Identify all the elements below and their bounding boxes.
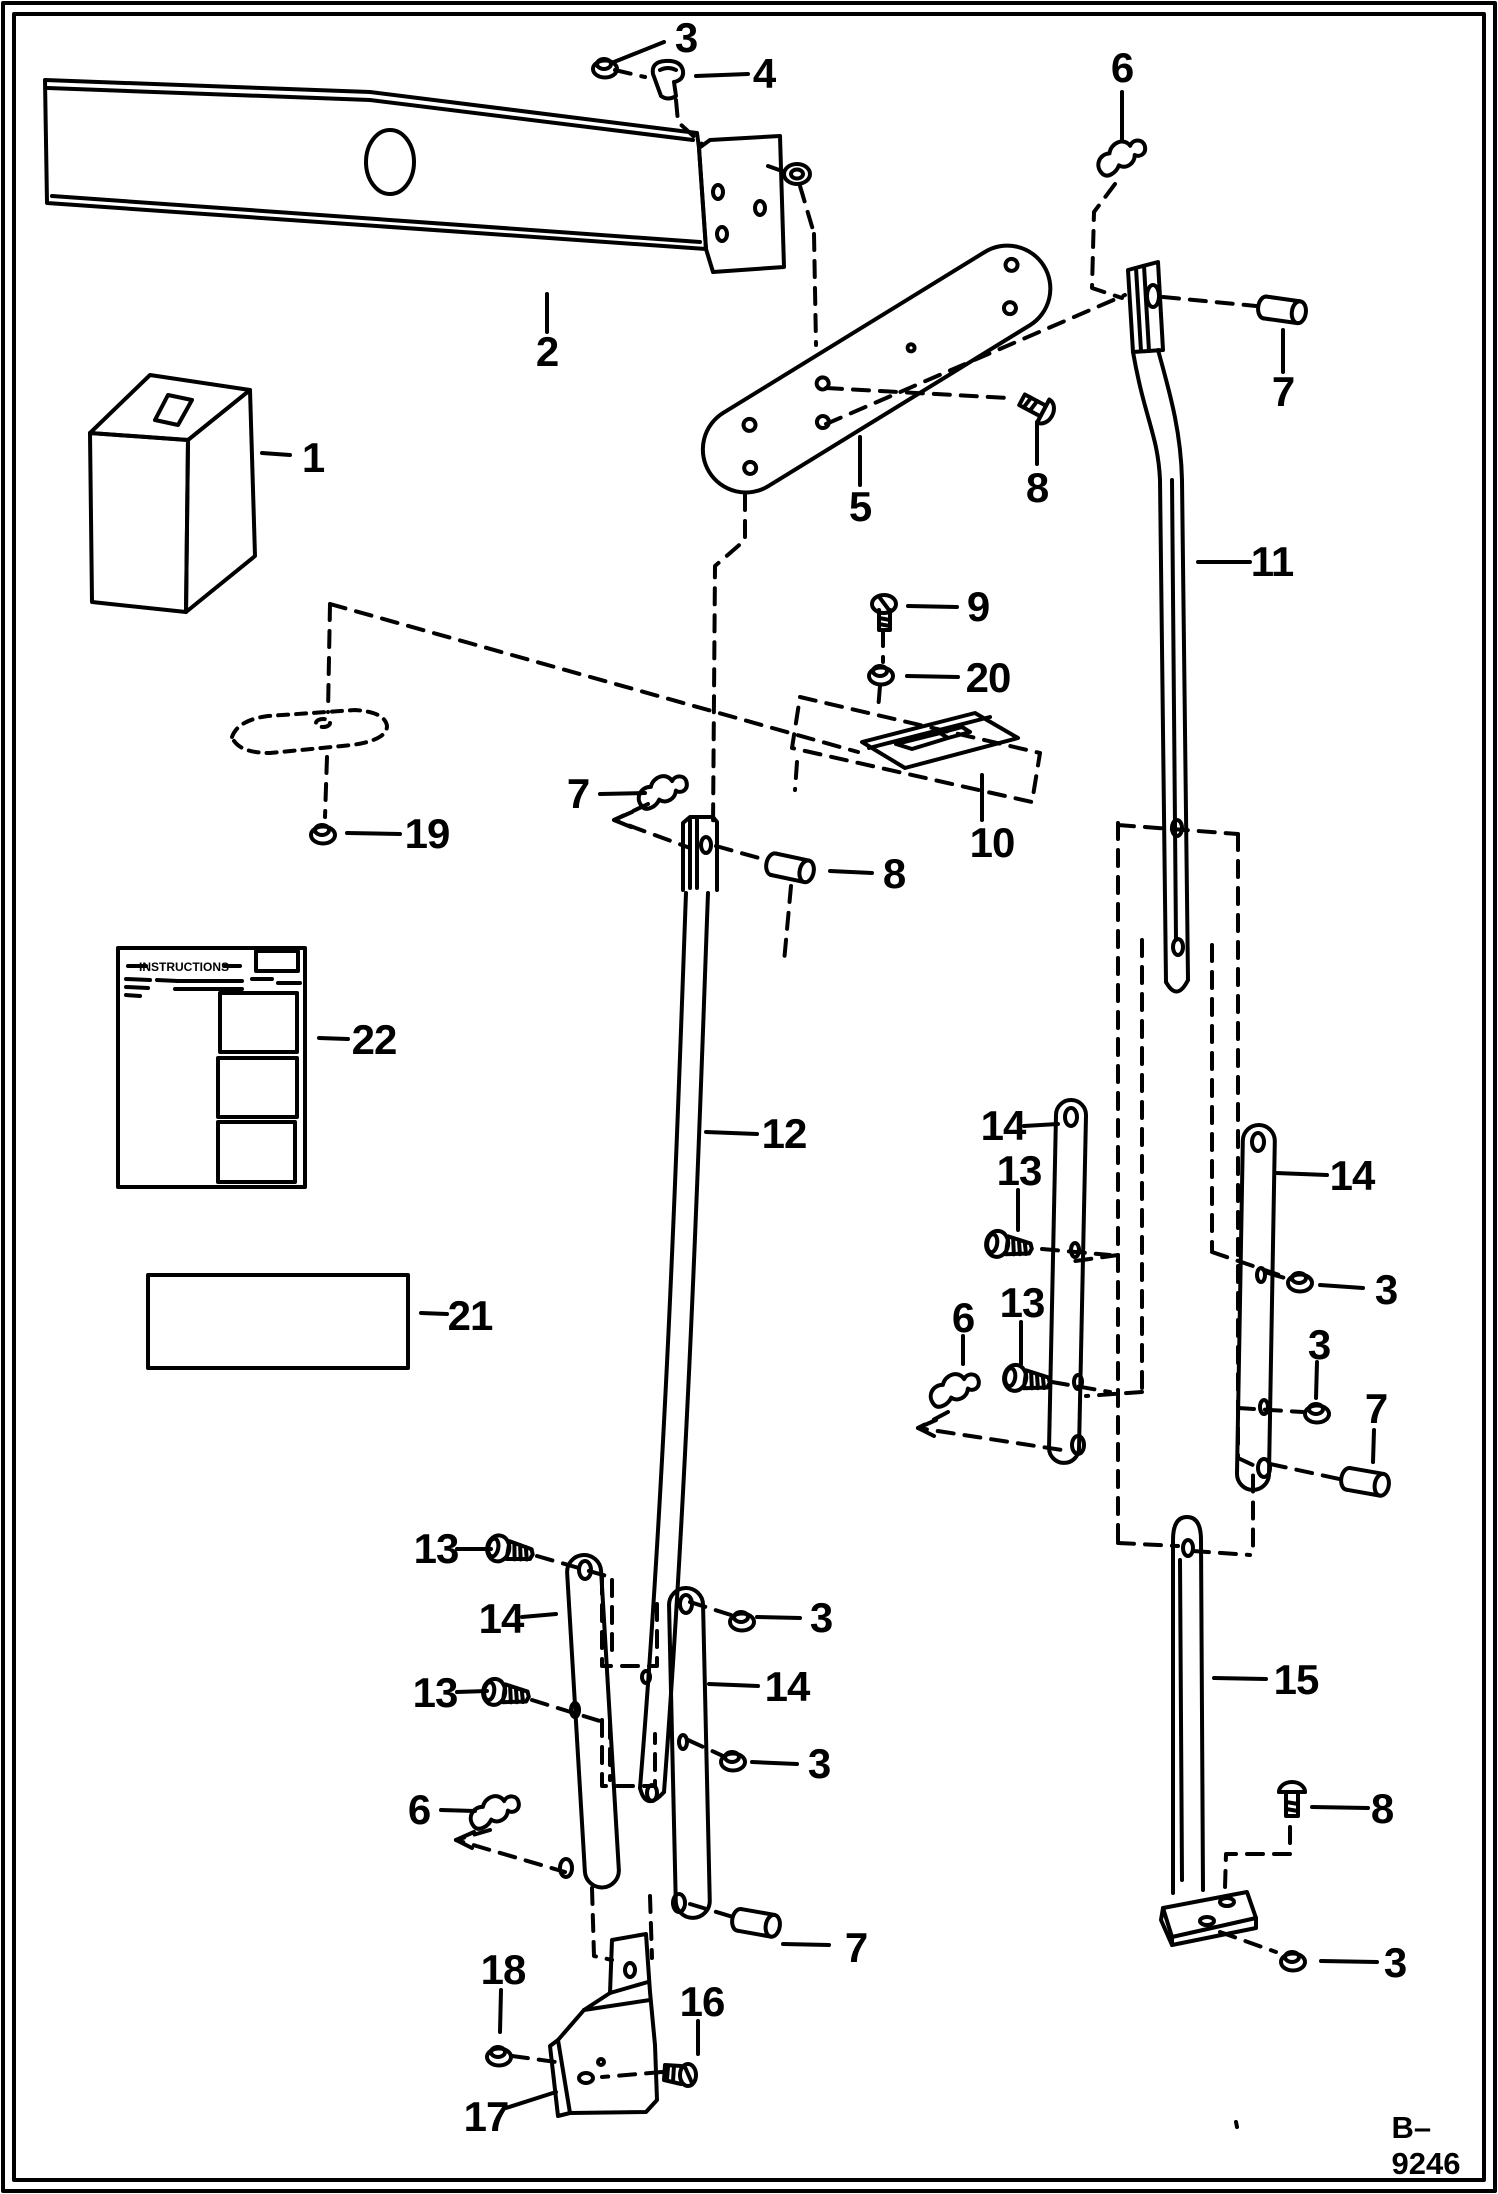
page-border [3,3,1495,2191]
callout-22: 22 [352,1016,397,1064]
part-22-instruction-sheet [118,948,348,1187]
figure-code: B–9246 [1392,2110,1463,2182]
callout-6: 6 [1111,44,1133,92]
callout-21: 21 [448,1292,493,1340]
instruction-sheet-title: INSTRUCTIONS [139,960,229,974]
callout-18: 18 [481,1946,526,1994]
washer-top [784,164,810,184]
part-13-bolt-a [984,1190,1033,1262]
part-3-nut-c [1281,1952,1377,1971]
part-13-bolt-d [457,1678,531,1710]
part-14-strap-left-1 [522,1554,620,1888]
callout-14c: 14 [479,1595,524,1643]
callout-3e: 3 [1384,1939,1406,1987]
part-3-nut-d [730,1612,800,1631]
part-16-screw [664,2021,698,2086]
callout-11: 11 [1251,538,1293,586]
part-18-nut [487,1990,511,2066]
part-7-pin-top [1257,296,1308,372]
callout-14a: 14 [981,1102,1026,1150]
part-20-nut [869,666,958,685]
part-3-nut-b [1305,1362,1329,1423]
part-17-bracket [506,1934,657,2116]
callout-15: 15 [1274,1656,1319,1704]
callout-13c: 13 [414,1525,459,1573]
callout-16: 16 [680,1978,725,2026]
callout-1: 1 [302,434,324,482]
part-13-bolt-c [457,1534,535,1568]
callout-7: 7 [1272,368,1294,416]
part-9-screw [872,595,957,630]
part-2-support-channel [45,80,784,332]
callout-3c: 3 [810,1594,832,1642]
part-21-decal [148,1275,447,1368]
callout-8c: 8 [1371,1785,1393,1833]
callout-2: 2 [536,328,558,376]
part-8-carriage-bolt-upper [1016,388,1058,464]
part-1-kit-box [90,375,290,612]
callout-7d: 7 [845,1924,867,1972]
callout-3b: 3 [1308,1321,1330,1369]
callout-20: 20 [966,654,1011,702]
callout-9: 9 [967,583,989,631]
part-19-nut [311,825,400,844]
callout-7c: 7 [1365,1385,1387,1433]
part-6-hairpin-top [1094,92,1150,177]
part-3-nut-e [721,1752,797,1771]
callout-13a: 13 [997,1147,1042,1195]
callout-6c: 6 [408,1786,430,1834]
callout-13d: 13 [413,1669,458,1717]
part-4-clip-nut [653,61,748,99]
callout-6b: 6 [952,1294,974,1342]
callout-10: 10 [970,819,1015,867]
part-8-carriage-bolt-lower [1279,1782,1368,1816]
callout-8b: 8 [883,850,905,898]
parts-diagram-page: INSTRUCTIONS 3 4 6 2 7 1 5 8 11 9 20 7 1… [0,0,1498,2194]
callout-12: 12 [762,1110,807,1158]
part-3-nut-a [1288,1273,1363,1292]
callout-4: 4 [753,50,775,98]
part-8-pin-mid [764,852,872,883]
callout-3d: 3 [808,1740,830,1788]
assembly-dashed-lines [325,70,1344,2077]
part-7-pin-b [1339,1430,1390,1497]
callout-17: 17 [464,2093,509,2141]
part-6-hairpin-left [441,1792,522,1830]
part-6-hairpin-right [928,1336,982,1408]
part-15-post [1161,1517,1266,1945]
callout-13b: 13 [1000,1279,1045,1327]
callout-3: 3 [675,14,697,62]
callout-19: 19 [405,810,450,858]
part-14-strap-right-2 [1237,1125,1327,1491]
callout-5: 5 [849,483,871,531]
part-19-phantom-plate [232,710,387,753]
part-12-long-strap [640,817,757,1801]
callout-7b: 7 [567,770,589,818]
part-11-long-strap [1128,262,1250,992]
exploded-parts-drawing: INSTRUCTIONS [0,0,1498,2194]
callout-3a: 3 [1375,1266,1397,1314]
callout-14d: 14 [765,1663,810,1711]
callout-8: 8 [1026,464,1048,512]
part-13-bolt-b [1002,1322,1051,1396]
reference-dot [1236,2122,1237,2127]
part-7-pin-c [730,1908,829,1945]
callout-14b: 14 [1330,1152,1375,1200]
